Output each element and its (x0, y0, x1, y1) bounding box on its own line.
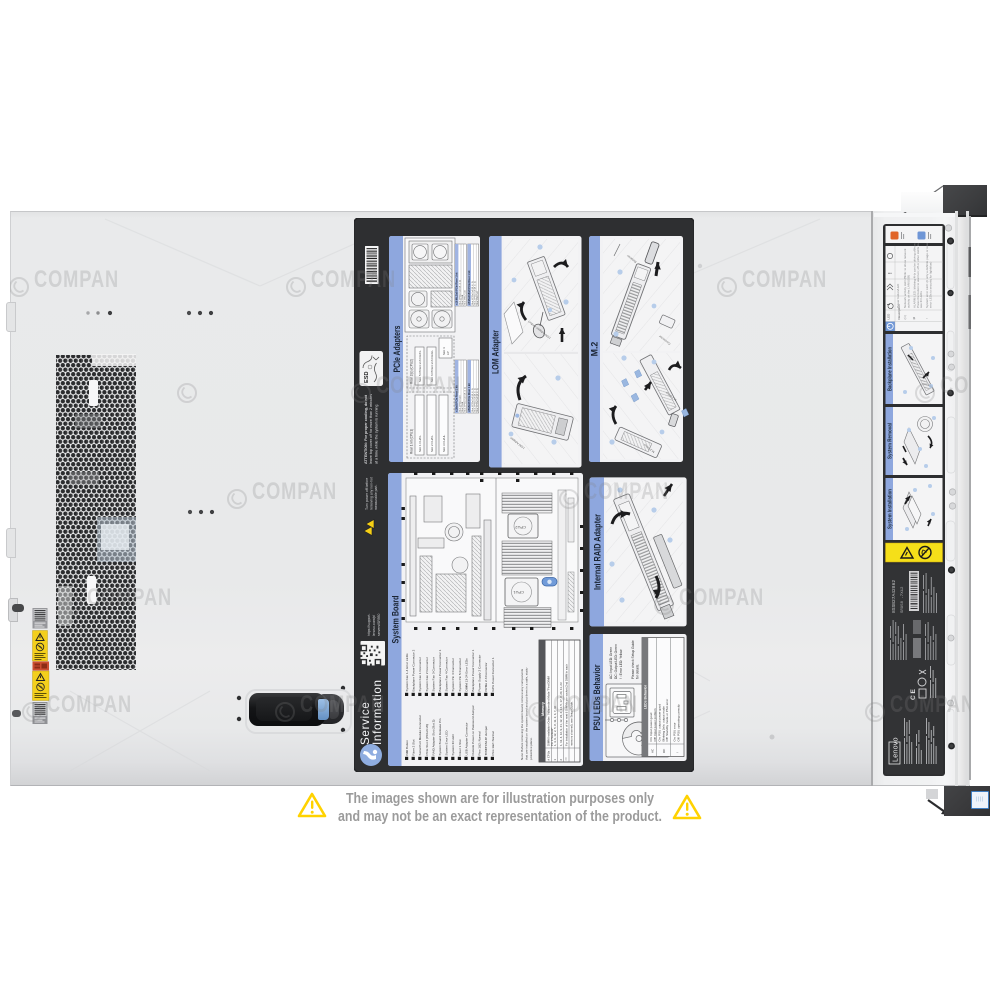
svg-text:Power button/LED: Power button/LED (896, 283, 900, 308)
svg-text:Internal RAID Adapter: Internal RAID Adapter (593, 514, 603, 590)
svg-text:8SSB27A42862: 8SSB27A42862 (891, 580, 897, 613)
svg-text:error LEDs to security for lig: error LEDs to security for lightblue) (928, 262, 932, 308)
svg-text:activity on the LAN/USB): activity on the LAN/USB) (906, 275, 910, 308)
svg-text:Memory: Memory (541, 702, 545, 716)
svg-text:CPU1: CPU1 (513, 590, 524, 595)
svg-text:System Pin 5 Connector: System Pin 5 Connector (458, 658, 462, 691)
svg-text:Rear 1 kit (CPU1): Rear 1 kit (CPU1) (410, 429, 414, 454)
svg-text:System ID LED: System ID LED (451, 734, 455, 756)
svg-text:servers/SR950: servers/SR950 (377, 613, 381, 636)
svg-text:TPM/TCM JP Jumper: TPM/TCM JP Jumper (484, 726, 488, 756)
svg-text:Slot 2 PCIe3 x8 (8, 4, 1): Slot 2 PCIe3 x8 (8, 4, 1) (474, 281, 477, 305)
svg-text:NMI Button: NMI Button (405, 740, 409, 756)
svg-text:leave top cover off for more t: leave top cover off for more than 2 minu… (369, 394, 373, 464)
svg-text:System Removal: System Removal (887, 422, 893, 459)
svg-text:System Fan 3 Connector: System Fan 3 Connector (431, 657, 435, 691)
svg-text:ATTENTION: For proper cooling: ATTENTION: For proper cooling, do not (364, 394, 368, 464)
svg-text:System Installation: System Installation (887, 489, 893, 529)
svg-text:that are installed on the syst: that are installed on the system board a… (525, 667, 529, 760)
svg-text:Backplane Power Connector 1: Backplane Power Connector 1 (438, 649, 442, 691)
svg-text:Pins 1&2: Normal: Pins 1&2: Normal (491, 731, 495, 755)
svg-text:System Pin 4 Connector: System Pin 4 Connector (451, 658, 455, 691)
svg-text:Slot 3 PCIe3 x8 (8, 4, 1): Slot 3 PCIe3 x8 (8, 4, 1) (476, 388, 479, 412)
svg-text:DC: Output LED: Green: DC: Output LED: Green (614, 644, 618, 679)
svg-text:at a time while the system is: at a time while the system is running. (374, 404, 378, 464)
svg-text:Note: Before removing the syst: Note: Before removing the system board, … (520, 668, 524, 760)
svg-text:PCIe Adapters: PCIe Adapters (392, 325, 402, 372)
svg-text:Slot 1 PCIe3 x16 (8, 4, 1): Slot 1 PCIe3 x16 (8, 4, 1) (458, 280, 461, 305)
svg-text:Slot 3 PCIe3 x16 (8, 4, 1): Slot 3 PCIe3 x16 (8, 4, 1) (464, 387, 467, 412)
svg-text:PSU LEDs Behavior: PSU LEDs Behavior (592, 664, 602, 730)
svg-text:Riser 2 Slot: Riser 2 Slot (412, 739, 416, 755)
svg-text:1, 4, 9, 12, 2, 5, 8, 11, 3, 6: 1, 4, 9, 12, 2, 5, 8, 11, 3, 6, 7, 10 (553, 705, 557, 746)
svg-text:Riser 1 Slot: Riser 1 Slot (458, 739, 462, 755)
svg-text:Slot 2 N/A: Slot 2 N/A (461, 401, 464, 411)
svg-text:Backplane Power Connector 2: Backplane Power Connector 2 (412, 649, 416, 691)
svg-text:Slot 3 ML2 x8: Slot 3 ML2 x8 (476, 291, 479, 305)
svg-text:Power Supply 2 Connector: Power Supply 2 Connector (478, 655, 482, 692)
svg-text:RAID Adapter Slot (Slot 2): RAID Adapter Slot (Slot 2) (431, 720, 435, 756)
svg-text:Off: Input power problem: Off: Input power problem (653, 708, 657, 741)
svg-text:Off: PSU operating correctly: Off: PSU operating correctly (676, 704, 680, 742)
svg-text:memory channel), see Setup Gui: memory channel), see Setup Guide. (570, 701, 574, 746)
svg-text:C E: C E (910, 689, 917, 701)
svg-text:Slot 6 PCIe3 x16 FH/HL: Slot 6 PCIe3 x16 FH/HL (430, 350, 434, 382)
svg-text:SR950 -7X12: SR950 -7X12 (901, 586, 905, 613)
svg-text:Slot 3 FH/HL: Slot 3 FH/HL (442, 434, 446, 452)
svg-text:Slot 2 N/A: Slot 2 N/A (461, 294, 464, 304)
svg-text:Slot 5 PCIe3 x16 FH/FL: Slot 5 PCIe3 x16 FH/FL (418, 350, 422, 382)
svg-text:Information: Information (371, 679, 384, 745)
svg-text:Slot 1 PCIe3 x16: Slot 1 PCIe3 x16 (458, 395, 461, 412)
svg-text:x16/x8 PCIe Riser 1 kit: x16/x8 PCIe Riser 1 kit (456, 385, 459, 412)
svg-text:ESD: ESD (364, 371, 370, 383)
svg-text:protective place.: protective place. (529, 737, 533, 760)
svg-text:GPU Power Connector 1: GPU Power Connector 1 (491, 657, 495, 691)
svg-text:1, 13, 4, 16, 9, 21, 12, 24, 2: 1, 13, 4, 16, 9, 21, 12, 24, 2, 14, 5, 1… (559, 682, 563, 746)
svg-text:see ID LEDs: see ID LEDs (919, 291, 923, 308)
svg-text:x8/x8/x8 PCIe Riser 1 kit: x8/x8/x8 PCIe Riser 1 kit (468, 383, 471, 412)
svg-text:Outside Power on Password Jump: Outside Power on Password Jumper (471, 705, 475, 755)
svg-text:USB Adapter Connector: USB Adapter Connector (464, 722, 468, 755)
svg-text:Serial Port Module Connector: Serial Port Module Connector (418, 715, 422, 756)
svg-text:Pins 1&2: Normal: Pins 1&2: Normal (478, 731, 482, 755)
svg-text:LOM Adapter: LOM Adapter (491, 330, 501, 374)
svg-text:x16 ML2/x8 PCIe Riser 1 kit: x16 ML2/x8 PCIe Riser 1 kit (456, 272, 459, 304)
svg-text:removing any non-hot: removing any non-hot (370, 477, 374, 510)
svg-text:LEDs Behavior: LEDs Behavior (644, 684, 648, 709)
svg-text:Off: Standby mode or PSU error: Off: Standby mode or PSU error (665, 699, 669, 742)
svg-text:lenovo.com/p/: lenovo.com/p/ (372, 615, 376, 636)
svg-text:CPU2: CPU2 (515, 525, 526, 530)
svg-text:Please check Setup Guide: Please check Setup Guide (631, 640, 635, 679)
svg-text:LP: LP (446, 351, 450, 355)
svg-text:Slot 2 PCIe3 x8 (8, 4, 1): Slot 2 PCIe3 x8 (8, 4, 1) (474, 388, 477, 412)
svg-text:LED: LED (887, 313, 891, 320)
svg-text:# CPUs: # CPUs (547, 750, 551, 760)
svg-text:M.2: M.2 (590, 342, 600, 357)
svg-text:System Fan 1 Connector: System Fan 1 Connector (418, 657, 422, 691)
svg-text:for details.: for details. (636, 664, 640, 679)
svg-text:NVMe 2-3 Connector: NVMe 2-3 Connector (484, 662, 488, 691)
svg-text:System Board: System Board (391, 596, 401, 644)
svg-text:AC: Input LED: Green: AC: Input LED: Green (609, 647, 613, 679)
svg-text:DIMM 13-24 Error LEDs: DIMM 13-24 Error LEDs (464, 658, 468, 692)
svg-text:(⏻): (⏻) (903, 315, 907, 319)
svg-text:System Fan 2 Connector: System Fan 2 Connector (425, 657, 429, 691)
svg-text:System Error LED: System Error LED (445, 730, 449, 756)
svg-text:! : Error LED: Yellow: ! : Error LED: Yellow (619, 649, 623, 679)
svg-text:Rear 2(e) (CPU2): Rear 2(e) (CPU2) (410, 359, 414, 384)
svg-text:Slot 1 PCIe3 x8 (8, 4, 1): Slot 1 PCIe3 x8 (8, 4, 1) (471, 388, 474, 412)
svg-text:Slot 3 ML2 x16: Slot 3 ML2 x16 (464, 289, 467, 304)
svg-text:x8 ML2/x8/x8 PCIe Riser 1 kit: x8 ML2/x8/x8 PCIe Riser 1 kit (468, 270, 471, 304)
svg-text:For installation of the next 6: For installation of the next 6 DIMMs per… (565, 663, 569, 746)
svg-text:PCIe Slot 4 (PCIe3 x8): PCIe Slot 4 (PCIe3 x8) (425, 724, 429, 755)
svg-text:Backplane Installation: Backplane Installation (887, 347, 893, 391)
svg-text:Slot 1 FH/FL: Slot 1 FH/FL (418, 435, 422, 452)
svg-text:System Fan 4 Connector: System Fan 4 Connector (445, 657, 449, 691)
svg-text:Slot 2 FH/FL: Slot 2 FH/FL (430, 435, 434, 452)
svg-text:Lenovo: Lenovo (893, 737, 900, 762)
svg-text:System Fan 1-4 Error LEDs: System Fan 1-4 Error LEDs (405, 653, 409, 691)
svg-text:Backplane Power Connector 1: Backplane Power Connector 1 (471, 649, 475, 691)
svg-text:https://support.: https://support. (367, 614, 371, 636)
svg-text:Turn power off before: Turn power off before (365, 478, 369, 510)
svg-text:System Board Release Pin: System Board Release Pin (438, 718, 442, 755)
svg-text:measurable part.: measurable part. (374, 484, 378, 510)
svg-text:Slot 1 PCIe3 x8 (8, 4, 1): Slot 1 PCIe3 x8 (8, 4, 1) (471, 281, 474, 305)
